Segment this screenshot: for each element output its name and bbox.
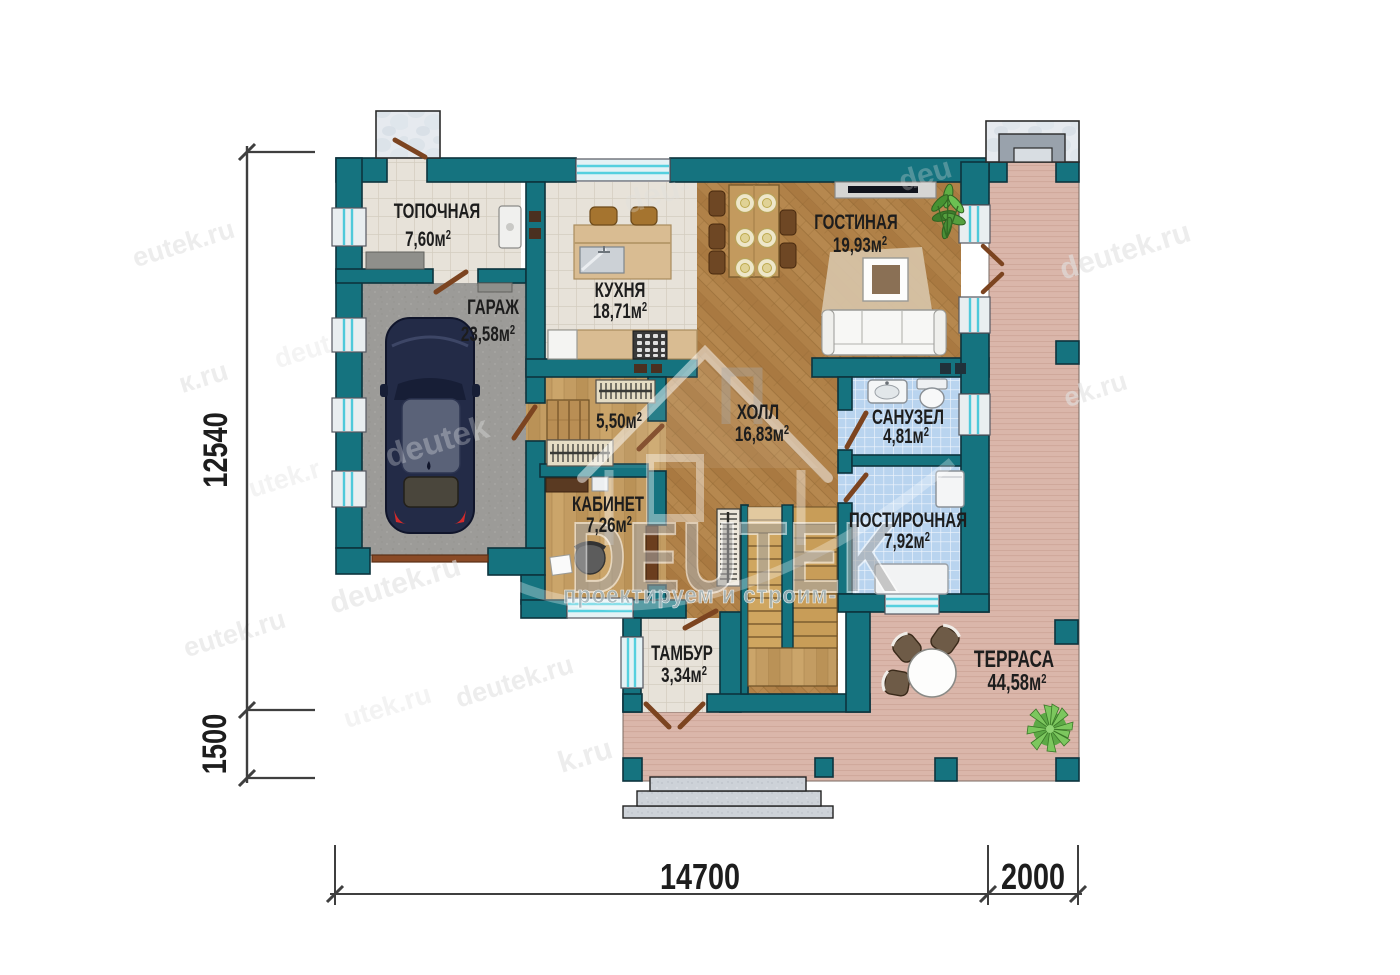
svg-text:7,92м2: 7,92м2 (884, 528, 930, 552)
svg-text:18,71м2: 18,71м2 (593, 298, 647, 322)
svg-text:ТЕРРАСА: ТЕРРАСА (974, 646, 1054, 672)
svg-text:19,93м2: 19,93м2 (833, 232, 887, 256)
svg-text:4,81м2: 4,81м2 (883, 423, 929, 447)
svg-text:23,58м2: 23,58м2 (461, 321, 515, 345)
svg-text:2000: 2000 (1001, 856, 1065, 897)
svg-text:7,60м2: 7,60м2 (405, 226, 451, 250)
svg-text:14700: 14700 (660, 856, 740, 897)
svg-text:ГОСТИНАЯ: ГОСТИНАЯ (814, 209, 897, 233)
svg-text:16,83м2: 16,83м2 (735, 421, 789, 445)
svg-text:3,34м2: 3,34м2 (661, 662, 707, 686)
svg-text:ХОЛЛ: ХОЛЛ (737, 399, 779, 423)
svg-text:44,58м2: 44,58м2 (988, 670, 1047, 695)
svg-text:5,50м2: 5,50м2 (596, 408, 642, 432)
svg-text:ТОПОЧНАЯ: ТОПОЧНАЯ (394, 198, 481, 222)
svg-text:1500: 1500 (195, 714, 234, 774)
svg-text:проектируем и строим-: проектируем и строим- (563, 581, 837, 608)
svg-text:7,26м2: 7,26м2 (586, 512, 632, 536)
svg-text:ГАРАЖ: ГАРАЖ (467, 294, 519, 318)
svg-text:ТАМБУР: ТАМБУР (651, 640, 713, 664)
svg-text:12540: 12540 (196, 412, 235, 488)
